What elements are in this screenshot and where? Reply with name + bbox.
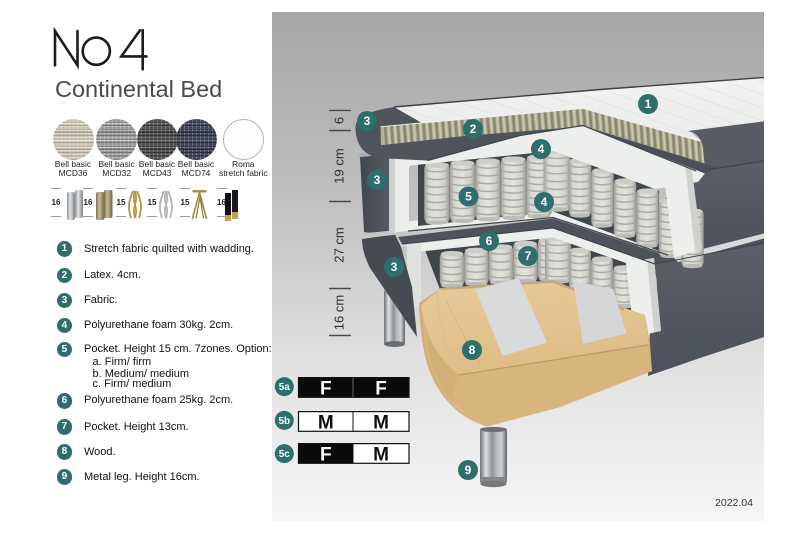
- svg-text:19 cm: 19 cm: [331, 148, 346, 183]
- svg-text:M: M: [373, 444, 389, 465]
- svg-text:9: 9: [465, 463, 472, 477]
- svg-text:5: 5: [465, 190, 472, 204]
- svg-text:7: 7: [525, 249, 532, 263]
- svg-text:F: F: [320, 378, 332, 399]
- svg-text:M: M: [318, 412, 334, 433]
- svg-text:F: F: [320, 444, 332, 465]
- svg-text:5c: 5c: [279, 449, 291, 460]
- svg-text:27 cm: 27 cm: [331, 227, 346, 262]
- svg-text:3: 3: [364, 114, 371, 128]
- svg-text:4: 4: [541, 195, 548, 209]
- svg-text:8: 8: [469, 343, 476, 357]
- svg-text:5a: 5a: [279, 382, 291, 393]
- svg-text:1: 1: [645, 97, 652, 111]
- svg-text:F: F: [375, 378, 387, 399]
- svg-text:3: 3: [391, 260, 398, 274]
- svg-text:6: 6: [331, 117, 346, 124]
- svg-text:4: 4: [538, 142, 545, 156]
- svg-text:5b: 5b: [278, 416, 290, 427]
- svg-text:3: 3: [374, 173, 381, 187]
- svg-text:2022.04: 2022.04: [715, 497, 753, 509]
- svg-text:2: 2: [470, 122, 477, 136]
- svg-text:6: 6: [486, 234, 493, 248]
- svg-text:M: M: [373, 412, 389, 433]
- svg-text:16 cm: 16 cm: [331, 295, 346, 330]
